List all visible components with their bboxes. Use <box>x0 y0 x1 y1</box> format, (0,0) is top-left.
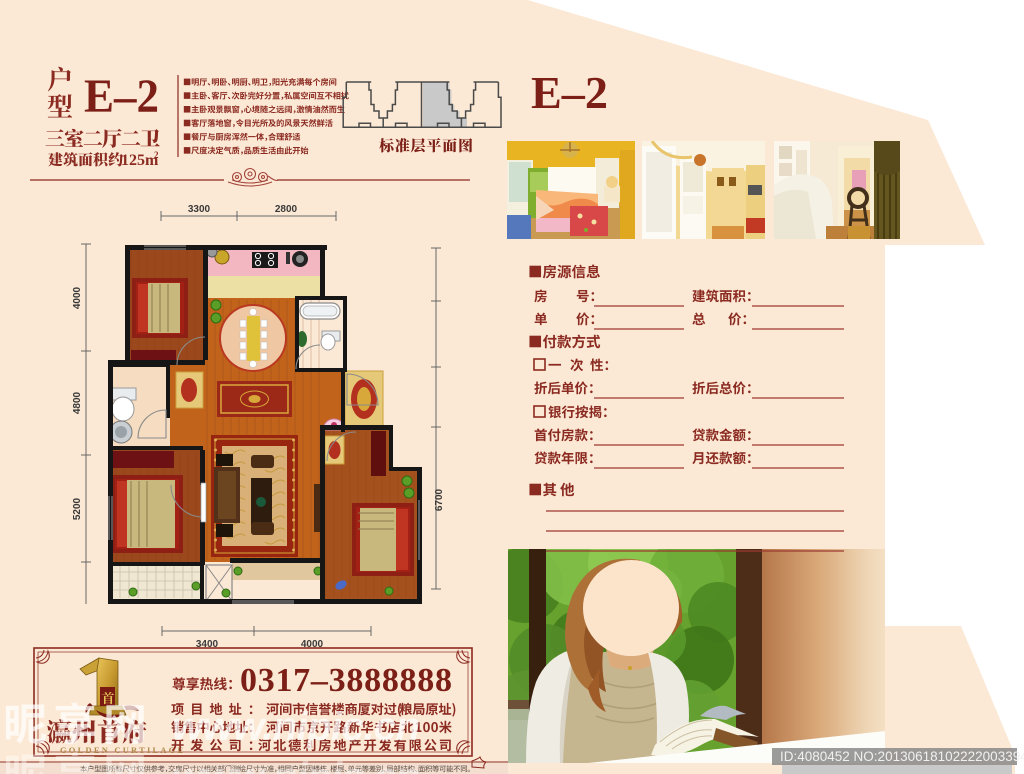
svg-text:2: 2 <box>154 150 159 160</box>
svg-text:www.nipic.cn: www.nipic.cn <box>172 755 420 774</box>
svg-text:3300: 3300 <box>188 204 211 215</box>
svg-text:2800: 2800 <box>275 204 298 215</box>
svg-text:E–2: E–2 <box>84 70 159 123</box>
svg-text:www.nipic.cn: www.nipic.cn <box>172 705 420 749</box>
svg-text:0317–3888888: 0317–3888888 <box>240 662 452 699</box>
svg-text:ID:4080452 NO:2013061810222200: ID:4080452 NO:20130618102222003394 <box>780 749 1024 764</box>
svg-text:E–2: E–2 <box>531 68 608 118</box>
svg-text:4000: 4000 <box>72 286 83 309</box>
svg-text:5200: 5200 <box>72 497 83 520</box>
svg-text:4800: 4800 <box>72 391 83 414</box>
svg-text:GOLDEN CURTILAGE: GOLDEN CURTILAGE <box>60 745 185 755</box>
svg-text:6700: 6700 <box>434 488 445 511</box>
